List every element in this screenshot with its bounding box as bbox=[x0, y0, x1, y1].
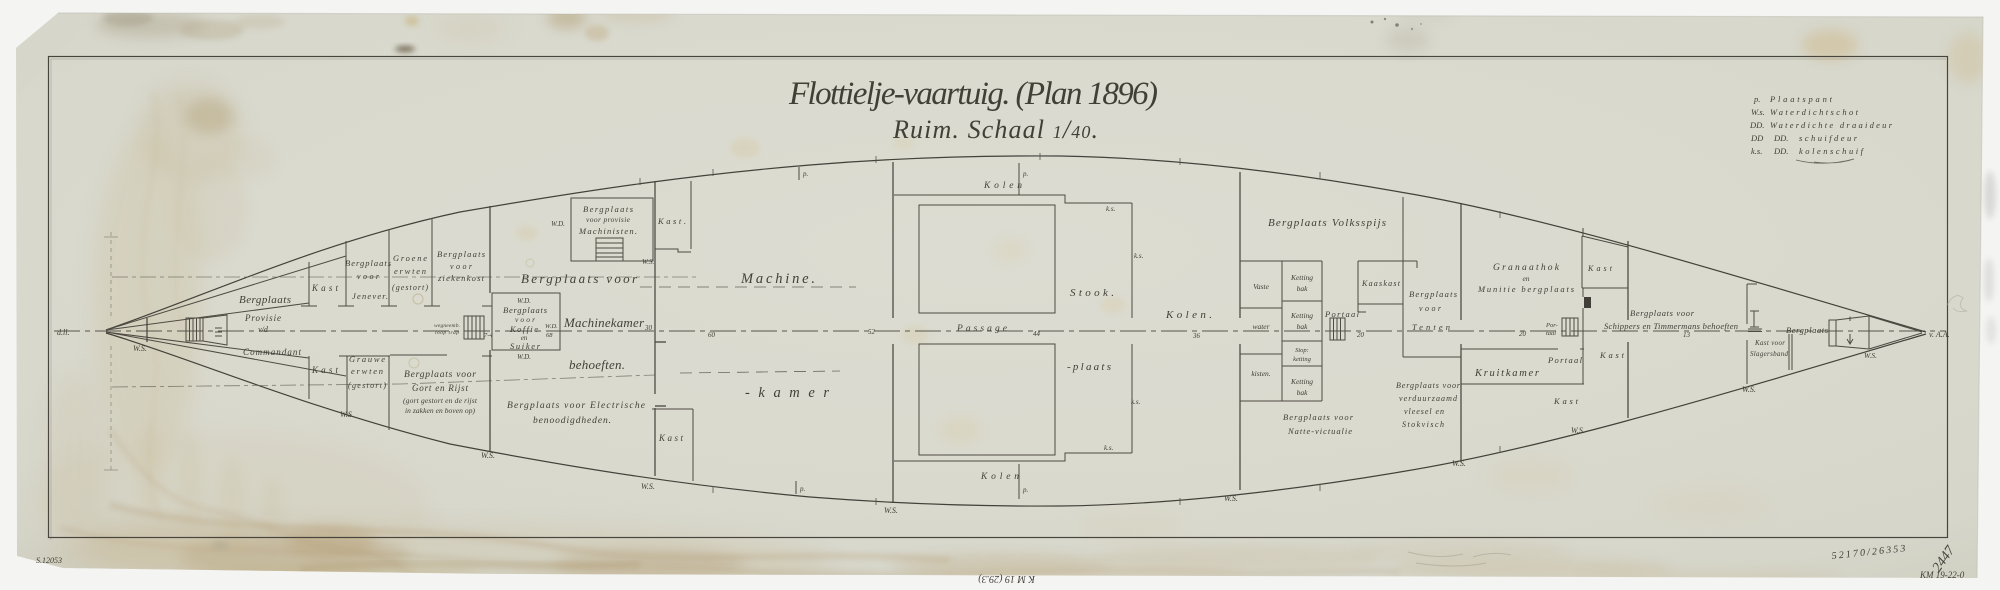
svg-text:W.D.: W.D. bbox=[551, 220, 565, 228]
svg-text:W.D.: W.D. bbox=[517, 297, 531, 305]
svg-text:Schippers en Timmermans behoef: Schippers en Timmermans behoeften bbox=[1604, 321, 1738, 331]
svg-text:Stokvisch: Stokvisch bbox=[1402, 420, 1444, 429]
svg-text:Bergplaats: Bergplaats bbox=[583, 204, 634, 214]
svg-text:W.S.: W.S. bbox=[1571, 426, 1585, 435]
svg-text:Bergplaats voor: Bergplaats voor bbox=[1283, 412, 1354, 422]
svg-text:Ruim. Schaal 1/40.: Ruim. Schaal 1/40. bbox=[892, 115, 1098, 144]
svg-text:Bergplaats: Bergplaats bbox=[503, 305, 548, 315]
svg-text:W.S.: W.S. bbox=[1452, 459, 1466, 468]
svg-text:p.: p. bbox=[1753, 94, 1760, 104]
svg-text:k.s.: k.s. bbox=[1134, 252, 1144, 260]
svg-text:44: 44 bbox=[1033, 330, 1041, 338]
svg-text:Kast: Kast bbox=[1599, 350, 1625, 360]
svg-text:loop trap: loop trap bbox=[435, 330, 459, 336]
svg-text:W.S.: W.S. bbox=[1864, 351, 1877, 360]
svg-text:(gestort): (gestort) bbox=[348, 381, 386, 390]
svg-text:Vaste: Vaste bbox=[1253, 282, 1270, 291]
svg-text:k.s.: k.s. bbox=[1106, 205, 1116, 213]
svg-text:W.S.: W.S. bbox=[1742, 385, 1756, 394]
svg-text:Bergplaats voor: Bergplaats voor bbox=[1630, 308, 1695, 318]
svg-text:Kolen: Kolen bbox=[983, 181, 1022, 191]
svg-text:W.S.: W.S. bbox=[641, 482, 655, 491]
svg-text:Slagersband: Slagersband bbox=[1750, 350, 1789, 358]
svg-text:Bergplaats: Bergplaats bbox=[1409, 289, 1458, 299]
svg-text:Bergplaats voor: Bergplaats voor bbox=[1396, 381, 1461, 390]
svg-text:-plaats: -plaats bbox=[1067, 361, 1111, 373]
svg-text:Por-: Por- bbox=[1545, 322, 1558, 329]
svg-text:v/d: v/d bbox=[258, 325, 269, 334]
svg-text:52: 52 bbox=[868, 328, 876, 336]
svg-text:v. A.A.: v. A.A. bbox=[1929, 330, 1950, 339]
svg-text:Koffie: Koffie bbox=[509, 324, 538, 334]
svg-text:bak: bak bbox=[1297, 388, 1309, 397]
svg-text:voor provisie: voor provisie bbox=[586, 215, 631, 224]
svg-text:36: 36 bbox=[1192, 332, 1201, 340]
svg-text:(gestort): (gestort) bbox=[392, 283, 428, 292]
svg-text:Kast voor: Kast voor bbox=[1754, 339, 1785, 347]
svg-text:W.s.: W.s. bbox=[1751, 107, 1765, 117]
svg-text:(gort gestort en de rijst: (gort gestort en de rijst bbox=[403, 396, 478, 405]
svg-text:20: 20 bbox=[1519, 330, 1527, 338]
svg-text:p.: p. bbox=[799, 485, 806, 493]
svg-text:Granaathok: Granaathok bbox=[1493, 263, 1560, 273]
svg-text:ziekenkost: ziekenkost bbox=[437, 273, 485, 283]
svg-text:DD.: DD. bbox=[1773, 133, 1788, 143]
svg-text:kolenschuif: kolenschuif bbox=[1799, 146, 1865, 156]
svg-text:Kaaskast: Kaaskast bbox=[1361, 279, 1401, 288]
svg-text:kisten.: kisten. bbox=[1251, 369, 1270, 378]
svg-text:Bergplaats voor: Bergplaats voor bbox=[404, 370, 476, 380]
svg-text:Jenever.: Jenever. bbox=[352, 291, 388, 301]
svg-text:water: water bbox=[1252, 322, 1269, 331]
svg-text:W.S.: W.S. bbox=[340, 410, 354, 419]
svg-text:behoeften.: behoeften. bbox=[569, 357, 625, 372]
svg-text:erwten: erwten bbox=[394, 266, 426, 276]
svg-text:Kast: Kast bbox=[1587, 264, 1613, 273]
svg-text:Kolen.: Kolen. bbox=[1165, 309, 1212, 321]
svg-text:Bergplaats: Bergplaats bbox=[239, 294, 291, 306]
svg-text:DD: DD bbox=[1750, 133, 1764, 143]
svg-text:Stop:: Stop: bbox=[1295, 347, 1309, 354]
svg-text:Ketting: Ketting bbox=[1290, 273, 1313, 282]
svg-text:bak: bak bbox=[1297, 322, 1309, 331]
svg-text:W.S.: W.S. bbox=[1224, 494, 1238, 503]
svg-text:Portaal: Portaal bbox=[1547, 355, 1583, 365]
svg-text:Bergplaats: Bergplaats bbox=[437, 249, 486, 259]
svg-text:DD.: DD. bbox=[1773, 146, 1788, 156]
svg-text:Machinekamer: Machinekamer bbox=[563, 315, 645, 330]
svg-text:W.D.: W.D. bbox=[545, 323, 558, 330]
svg-text:p.: p. bbox=[1022, 486, 1029, 494]
svg-text:7-4: 7-4 bbox=[484, 332, 493, 339]
svg-text:bak: bak bbox=[1297, 284, 1309, 293]
svg-text:20: 20 bbox=[1357, 331, 1365, 339]
svg-text:W.S.: W.S. bbox=[642, 258, 654, 266]
svg-text:60: 60 bbox=[708, 331, 716, 339]
svg-text:p.: p. bbox=[1022, 170, 1029, 178]
svg-text:Kruitkamer: Kruitkamer bbox=[1474, 368, 1540, 379]
svg-text:benoodigdheden.: benoodigdheden. bbox=[533, 416, 611, 426]
svg-text:Commandant: Commandant bbox=[243, 347, 301, 357]
svg-text:DD.: DD. bbox=[1749, 120, 1764, 130]
svg-text:Bergplaats voor Electrische: Bergplaats voor Electrische bbox=[507, 401, 645, 411]
svg-text:Bergplaats: Bergplaats bbox=[345, 258, 392, 268]
svg-text:Natte-victualie: Natte-victualie bbox=[1287, 426, 1352, 436]
svg-text:taal: taal bbox=[1546, 330, 1556, 337]
svg-text:k.s.: k.s. bbox=[1131, 398, 1141, 406]
svg-text:Ketting: Ketting bbox=[1290, 311, 1313, 320]
svg-text:en: en bbox=[1522, 274, 1529, 283]
svg-text:W.S.: W.S. bbox=[481, 451, 495, 460]
svg-text:S.12053: S.12053 bbox=[36, 556, 62, 565]
svg-text:schuifdeur: schuifdeur bbox=[1799, 133, 1858, 143]
svg-text:W.S.: W.S. bbox=[133, 344, 147, 353]
svg-text:vleesel en: vleesel en bbox=[1404, 407, 1444, 416]
svg-text:68: 68 bbox=[546, 332, 553, 339]
svg-text:Provisie: Provisie bbox=[244, 313, 281, 323]
svg-text:k.s.: k.s. bbox=[1751, 146, 1762, 156]
svg-text:K M 19 (29.3): K M 19 (29.3) bbox=[978, 573, 1036, 584]
svg-text:erwten: erwten bbox=[351, 366, 383, 376]
svg-text:W.D.: W.D. bbox=[517, 353, 531, 361]
svg-text:Kolen: Kolen bbox=[980, 472, 1019, 482]
svg-text:Kast: Kast bbox=[658, 433, 683, 443]
svg-text:Machine.: Machine. bbox=[740, 271, 815, 287]
svg-text:in zakken en boven op): in zakken en boven op) bbox=[405, 406, 476, 415]
svg-text:Bergplaats voor: Bergplaats voor bbox=[521, 271, 638, 286]
svg-text:k.s.: k.s. bbox=[1104, 444, 1114, 452]
svg-text:Kast: Kast bbox=[1553, 396, 1579, 406]
svg-text:W.S.: W.S. bbox=[884, 506, 898, 515]
svg-text:Gort en Rijst: Gort en Rijst bbox=[412, 383, 468, 393]
svg-text:d.ll.: d.ll. bbox=[57, 328, 69, 337]
svg-text:Flottielje-vaartuig. (Plan 189: Flottielje-vaartuig. (Plan 1896) bbox=[788, 76, 1159, 112]
svg-text:13: 13 bbox=[1683, 331, 1691, 339]
svg-text:wegneemb.: wegneemb. bbox=[434, 323, 460, 329]
svg-text:ketting: ketting bbox=[1293, 356, 1311, 363]
svg-text:Ketting: Ketting bbox=[1290, 377, 1313, 386]
svg-text:30: 30 bbox=[644, 324, 653, 332]
svg-text:verduurzaamd: verduurzaamd bbox=[1399, 394, 1458, 403]
svg-text:Bergplaats Volksspijs: Bergplaats Volksspijs bbox=[1268, 217, 1386, 229]
svg-text:p.: p. bbox=[802, 170, 809, 178]
svg-text:KM 19-22-0: KM 19-22-0 bbox=[1919, 570, 1965, 580]
svg-text:Bergplaats: Bergplaats bbox=[1786, 325, 1829, 335]
